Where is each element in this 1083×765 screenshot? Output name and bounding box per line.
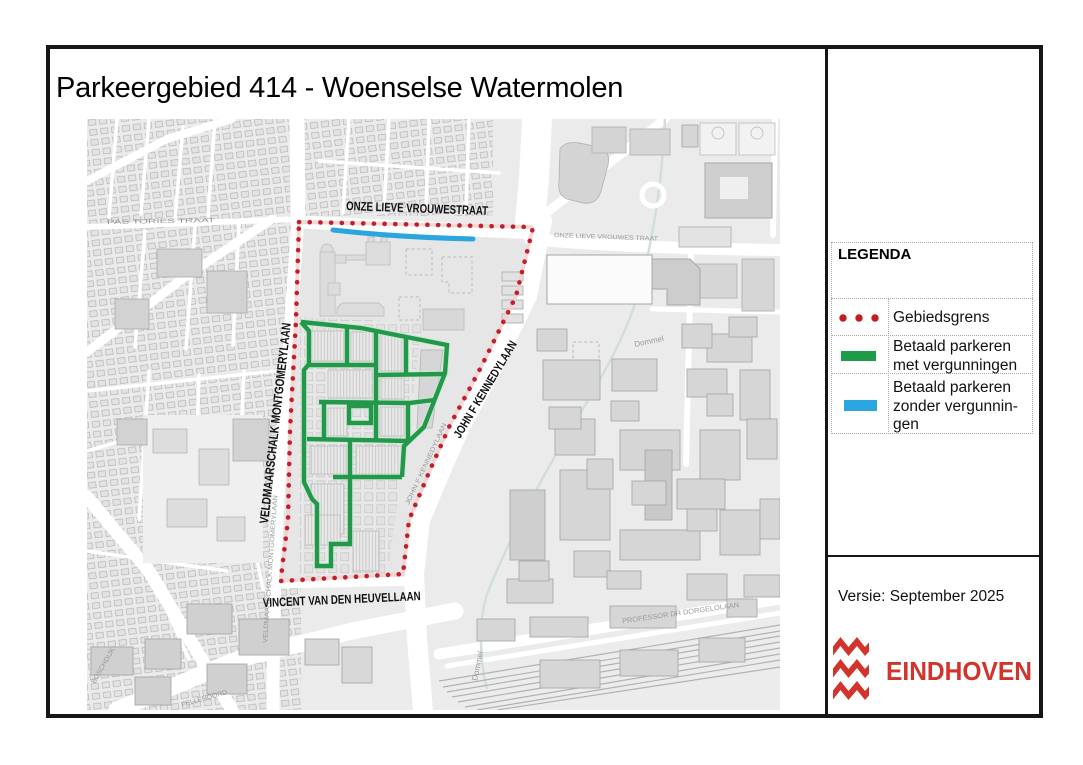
svg-text:EINDHOVEN: EINDHOVEN — [886, 658, 1032, 686]
